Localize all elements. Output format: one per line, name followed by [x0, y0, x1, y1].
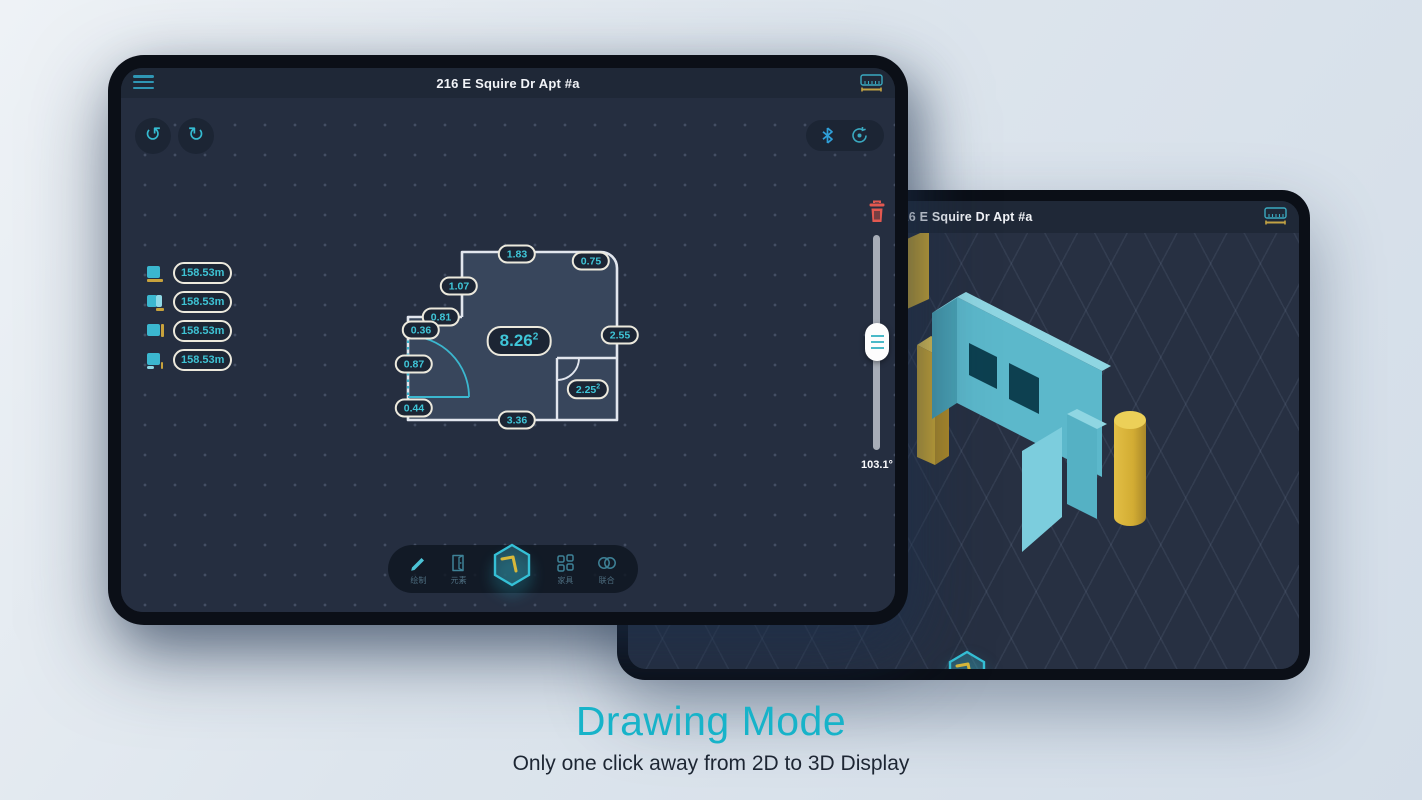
redo-button[interactable]: ↻ — [178, 118, 214, 154]
page-title-2d: 216 E Squire Dr Apt #a — [121, 76, 895, 91]
tab-3d-toggle[interactable] — [489, 542, 535, 593]
undo-button[interactable]: ↺ — [135, 118, 171, 154]
tab-draw[interactable]: 绘制 — [408, 553, 428, 586]
connection-tools — [806, 120, 884, 151]
small-room-area-badge[interactable]: 2.252 — [567, 379, 609, 399]
wall-right-edge-icon — [147, 323, 164, 340]
measurement-badge[interactable]: 0.36 — [402, 321, 440, 340]
caption-subtitle: Only one click away from 2D to 3D Displa… — [0, 752, 1422, 776]
room-area-badge[interactable]: 8.262 — [487, 326, 552, 356]
pencil-icon — [408, 553, 428, 573]
wall-length-badge[interactable]: 158.53m — [173, 320, 232, 342]
appbar-2d: 216 E Squire Dr Apt #a — [121, 68, 895, 98]
ruler-icon[interactable] — [859, 73, 885, 93]
tablet-2d-view: 216 E Squire Dr Apt #a ↺ ↻ — [108, 55, 908, 625]
wall-list-item[interactable]: 158.53m — [147, 291, 232, 313]
measurement-badge[interactable]: 1.07 — [440, 277, 478, 296]
measurement-badge[interactable]: 0.75 — [572, 252, 610, 271]
caption: Drawing Mode Only one click away from 2D… — [0, 698, 1422, 776]
screen-2d: 216 E Squire Dr Apt #a ↺ ↻ — [121, 68, 895, 612]
wall-list-item[interactable]: 158.53m — [147, 262, 232, 284]
cube-3d-icon — [489, 542, 535, 588]
door-leaf-3d — [1022, 427, 1062, 552]
wall-list-item[interactable]: 158.53m — [147, 320, 232, 342]
trash-icon[interactable] — [866, 200, 888, 224]
wall-length-badge[interactable]: 158.53m — [173, 262, 232, 284]
angle-value: 103.1° — [849, 459, 895, 471]
measurement-badge[interactable]: 3.36 — [498, 411, 536, 430]
tab-elements[interactable]: 元素 — [449, 553, 469, 586]
sync-icon[interactable] — [850, 126, 869, 145]
marketing-background: 216 E Squire Dr Apt #a — [0, 0, 1422, 800]
measurement-badge[interactable]: 2.55 — [601, 326, 639, 345]
merge-icon — [596, 553, 618, 573]
wall-list-item[interactable]: 158.53m — [147, 349, 232, 371]
tab-furniture[interactable]: 家具 — [555, 553, 575, 586]
door-icon — [449, 553, 469, 573]
measurement-badge[interactable]: 0.87 — [395, 355, 433, 374]
rotation-slider-handle[interactable] — [865, 323, 889, 361]
bluetooth-icon[interactable] — [821, 127, 834, 144]
cube-3d-icon[interactable] — [944, 649, 990, 669]
wall-corner-edge-icon — [147, 352, 164, 369]
ruler-icon[interactable] — [1263, 206, 1289, 226]
undo-icon: ↺ — [145, 124, 162, 146]
measurement-badge[interactable]: 1.83 — [498, 245, 536, 264]
tab-merge[interactable]: 联合 — [596, 553, 618, 586]
caption-title: Drawing Mode — [0, 698, 1422, 745]
wall-bottom-edge-icon — [147, 265, 164, 282]
wall-length-badge[interactable]: 158.53m — [173, 291, 232, 313]
wall-right-panel-icon — [147, 294, 164, 311]
drawing-canvas[interactable]: ↺ ↻ 158.53m — [121, 98, 895, 612]
wall-length-badge[interactable]: 158.53m — [173, 349, 232, 371]
measurement-badge[interactable]: 0.44 — [395, 399, 433, 418]
redo-icon: ↻ — [188, 124, 205, 146]
mode-toolbar: 绘制 元素 — [388, 545, 638, 593]
grid-icon — [555, 553, 575, 573]
wall-measurement-list: 158.53m 158.53m 158.53m 158.53m — [147, 262, 232, 378]
yellow-cylinder — [1114, 411, 1146, 526]
